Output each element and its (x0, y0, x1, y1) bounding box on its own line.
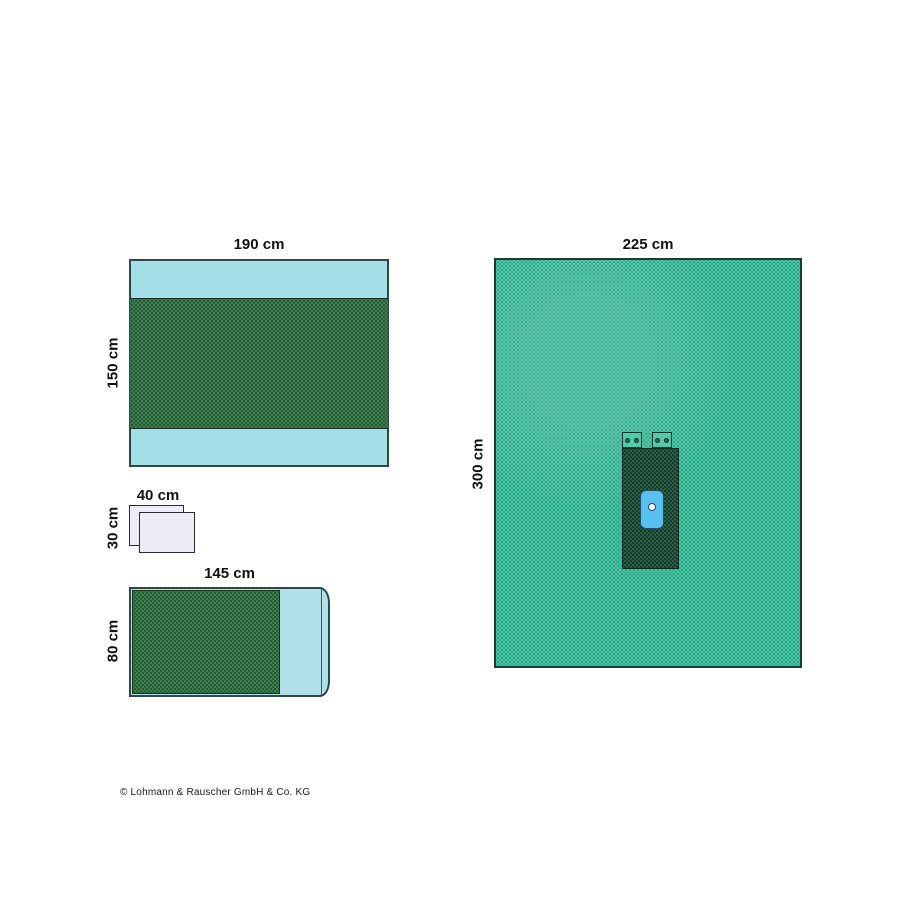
copyright-text: © Lohmann & Rauscher GmbH & Co. KG (120, 787, 310, 798)
main-drape-width-label: 225 cm (494, 236, 802, 253)
incise-film (640, 490, 664, 529)
main-drape-height-label: 300 cm (470, 439, 487, 490)
towel-height-label: 30 cm (105, 507, 122, 550)
tab-hole-icon (625, 438, 630, 443)
side-drape-rolled-edge (321, 589, 322, 695)
side-drape-height-label: 80 cm (105, 620, 122, 663)
tab-hole-icon (664, 438, 669, 443)
product-illustration: 190 cm 150 cm 40 cm 30 cm 145 cm 80 cm 2… (0, 0, 918, 918)
adhesive-drape (129, 259, 389, 467)
side-drape (129, 587, 330, 697)
adhesive-drape-height-label: 150 cm (105, 338, 122, 389)
aperture-hole (648, 503, 656, 511)
side-drape-absorbent-zone (132, 590, 280, 694)
main-drape (494, 258, 802, 668)
towel-front (139, 512, 195, 553)
towel-width-label: 40 cm (129, 487, 187, 504)
fixation-tab-left (622, 432, 642, 448)
tab-hole-icon (634, 438, 639, 443)
tab-hole-icon (655, 438, 660, 443)
adhesive-drape-absorbent-zone (130, 298, 388, 429)
adhesive-drape-width-label: 190 cm (129, 236, 389, 253)
fixation-tab-right (652, 432, 672, 448)
side-drape-width-label: 145 cm (129, 565, 330, 582)
reinforcement-zone (622, 448, 679, 569)
